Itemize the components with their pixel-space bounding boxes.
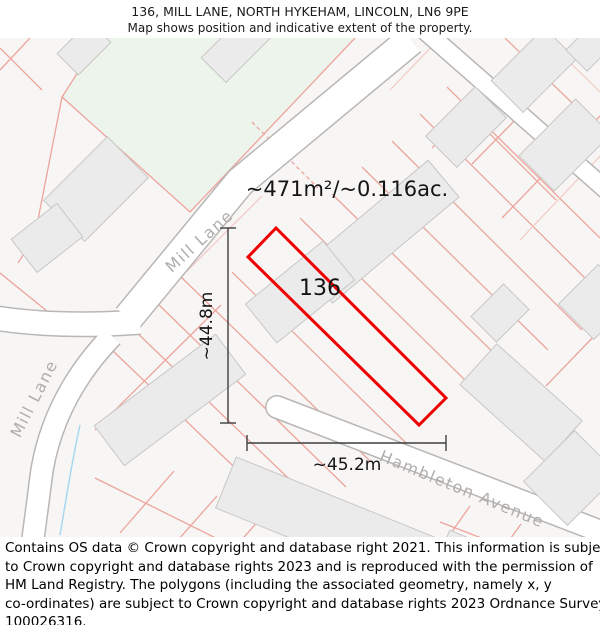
- page-subtitle: Map shows position and indicative extent…: [0, 20, 600, 36]
- plot-number-label: 136: [299, 276, 341, 301]
- map-canvas: ~471m²/~0.116ac. 136 ~44.8m ~45.2m Mill …: [0, 38, 600, 537]
- footer-line: Contains OS data © Crown copyright and d…: [5, 539, 597, 558]
- page-title: 136, MILL LANE, NORTH HYKEHAM, LINCOLN, …: [0, 0, 600, 20]
- vertical-dimension-label: ~44.8m: [197, 292, 217, 361]
- copyright-footer: Contains OS data © Crown copyright and d…: [0, 537, 600, 625]
- footer-line: co-ordinates) are subject to Crown copyr…: [5, 595, 597, 614]
- map-header: 136, MILL LANE, NORTH HYKEHAM, LINCOLN, …: [0, 0, 600, 38]
- property-map-page: 136, MILL LANE, NORTH HYKEHAM, LINCOLN, …: [0, 0, 600, 625]
- horizontal-dimension-label: ~45.2m: [313, 455, 382, 475]
- footer-line: HM Land Registry. The polygons (includin…: [5, 576, 597, 595]
- footer-line: to Crown copyright and database rights 2…: [5, 558, 597, 577]
- area-label: ~471m²/~0.116ac.: [246, 177, 448, 201]
- footer-line: 100026316.: [5, 613, 597, 625]
